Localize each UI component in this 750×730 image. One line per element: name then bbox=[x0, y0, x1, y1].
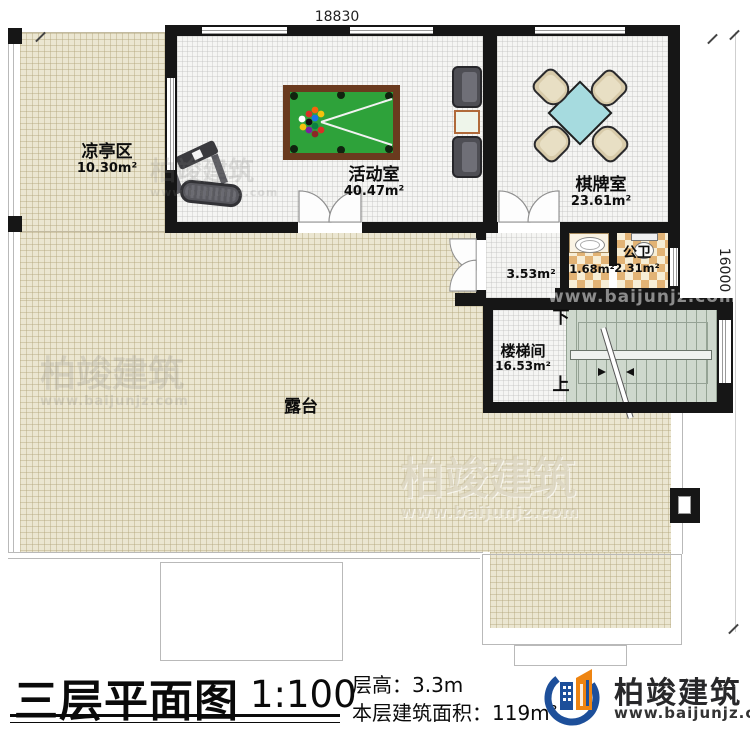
billiard-table bbox=[283, 85, 400, 160]
watermark-url: www.baijunjz.com bbox=[400, 503, 579, 521]
roof-outline-below bbox=[482, 554, 682, 645]
title-underline bbox=[10, 722, 340, 723]
stair-break-arrow bbox=[598, 368, 606, 376]
wall bbox=[560, 222, 680, 233]
billiard-table-art bbox=[290, 92, 393, 153]
watermark-url: www.baijunjz.com bbox=[150, 187, 278, 199]
room-name: 活动室 bbox=[344, 166, 404, 185]
window bbox=[717, 320, 733, 383]
window bbox=[202, 25, 287, 36]
dimension-line bbox=[735, 32, 736, 632]
room-label-hallway: 3.53m² bbox=[506, 267, 555, 281]
title-underline bbox=[10, 714, 340, 717]
watermark-name: 柏竣建筑 bbox=[40, 355, 189, 395]
window bbox=[535, 25, 625, 36]
watermark: 柏竣建筑 www.baijunjz.com bbox=[150, 158, 278, 199]
dimension-tick bbox=[728, 624, 739, 635]
room-area: 23.61m² bbox=[571, 195, 631, 210]
wall bbox=[455, 293, 483, 306]
room-label-chess: 棋牌室 23.61m² bbox=[571, 176, 631, 210]
dimension-tick bbox=[707, 34, 718, 45]
room-name: 棋牌室 bbox=[571, 176, 631, 195]
pavilion-edge-line bbox=[20, 231, 165, 232]
wall bbox=[476, 232, 486, 240]
brand-url: www.baijunjz.com bbox=[614, 704, 750, 722]
stair-handrail bbox=[570, 350, 712, 360]
room-name: 露台 bbox=[284, 398, 318, 417]
room-name: 公卫 bbox=[614, 246, 659, 262]
floor-pavilion bbox=[20, 33, 172, 231]
stair-direction: 下 bbox=[553, 309, 570, 328]
room-area: 3.53m² bbox=[506, 267, 555, 281]
watermark: 柏竣建筑 www.baijunjz.com bbox=[400, 455, 579, 521]
floor-area-text: 本层建筑面积：119m² bbox=[352, 697, 558, 726]
column bbox=[8, 216, 22, 232]
watermark-name: 柏竣建筑 bbox=[400, 455, 579, 503]
eave-line bbox=[8, 33, 9, 552]
stair-break-arrow bbox=[626, 368, 634, 376]
watermark: www.baijunjz.com bbox=[548, 288, 738, 307]
watermark-url: www.baijunjz.com bbox=[548, 288, 738, 307]
door-opening bbox=[498, 222, 560, 233]
eave-line bbox=[682, 412, 683, 554]
watermark-url: www.baijunjz.com bbox=[40, 395, 189, 409]
double-door bbox=[449, 238, 477, 292]
wall bbox=[165, 222, 298, 233]
room-label-activity: 活动室 40.47m² bbox=[344, 166, 404, 200]
washbasin-counter bbox=[569, 233, 609, 253]
window bbox=[350, 25, 433, 36]
room-area: 40.47m² bbox=[344, 185, 404, 200]
watermark: 柏竣建筑 www.baijunjz.com bbox=[40, 355, 189, 409]
plan-title: 三层平面图 bbox=[14, 665, 239, 729]
room-label-washbasin: 1.68m² bbox=[569, 263, 614, 276]
room-area: 10.30m² bbox=[77, 162, 137, 177]
door-opening bbox=[298, 222, 362, 233]
room-label-toilet: 公卫 2.31m² bbox=[614, 246, 659, 275]
window bbox=[668, 248, 680, 286]
watermark-name: 柏竣建筑 bbox=[150, 158, 278, 187]
side-table bbox=[454, 110, 480, 134]
room-area: 2.31m² bbox=[614, 262, 659, 275]
stair-direction: 上 bbox=[553, 376, 570, 395]
double-door bbox=[498, 190, 560, 223]
armchair bbox=[452, 66, 482, 108]
stair-up-label: 上 bbox=[553, 376, 570, 395]
dimension-right: 16000 bbox=[716, 240, 732, 300]
column bbox=[8, 28, 22, 44]
plan-scale: 1:100 bbox=[250, 673, 357, 716]
floor-plan-canvas: 柏竣建筑 www.baijunjz.com 柏竣建筑 www.baijunjz.… bbox=[0, 0, 750, 730]
stair-down-label: 下 bbox=[553, 309, 570, 328]
room-name: 凉亭区 bbox=[77, 143, 137, 162]
room-label-pavilion: 凉亭区 10.30m² bbox=[77, 143, 137, 177]
eave-line bbox=[13, 33, 14, 552]
column-notch bbox=[678, 496, 691, 514]
wall bbox=[483, 25, 497, 233]
dimension-top: 18830 bbox=[315, 9, 360, 25]
wall bbox=[362, 222, 483, 233]
wall bbox=[560, 232, 569, 290]
room-label-terrace: 露台 bbox=[284, 398, 318, 417]
room-label-stairwell: 楼梯间 16.53m² bbox=[495, 343, 551, 373]
roof-outline-below bbox=[514, 645, 627, 666]
armchair bbox=[452, 136, 482, 178]
room-area: 1.68m² bbox=[569, 263, 614, 276]
eave-line bbox=[8, 552, 483, 553]
floor-terrace bbox=[20, 232, 476, 300]
room-name: 楼梯间 bbox=[495, 343, 551, 360]
floor-height-text: 层高：3.3m bbox=[352, 669, 463, 698]
wall bbox=[483, 300, 493, 412]
room-area: 16.53m² bbox=[495, 360, 551, 373]
eave-line bbox=[8, 558, 480, 559]
wall bbox=[483, 402, 733, 413]
brand-logo-icon bbox=[538, 664, 612, 728]
roof-outline-below bbox=[160, 562, 343, 661]
